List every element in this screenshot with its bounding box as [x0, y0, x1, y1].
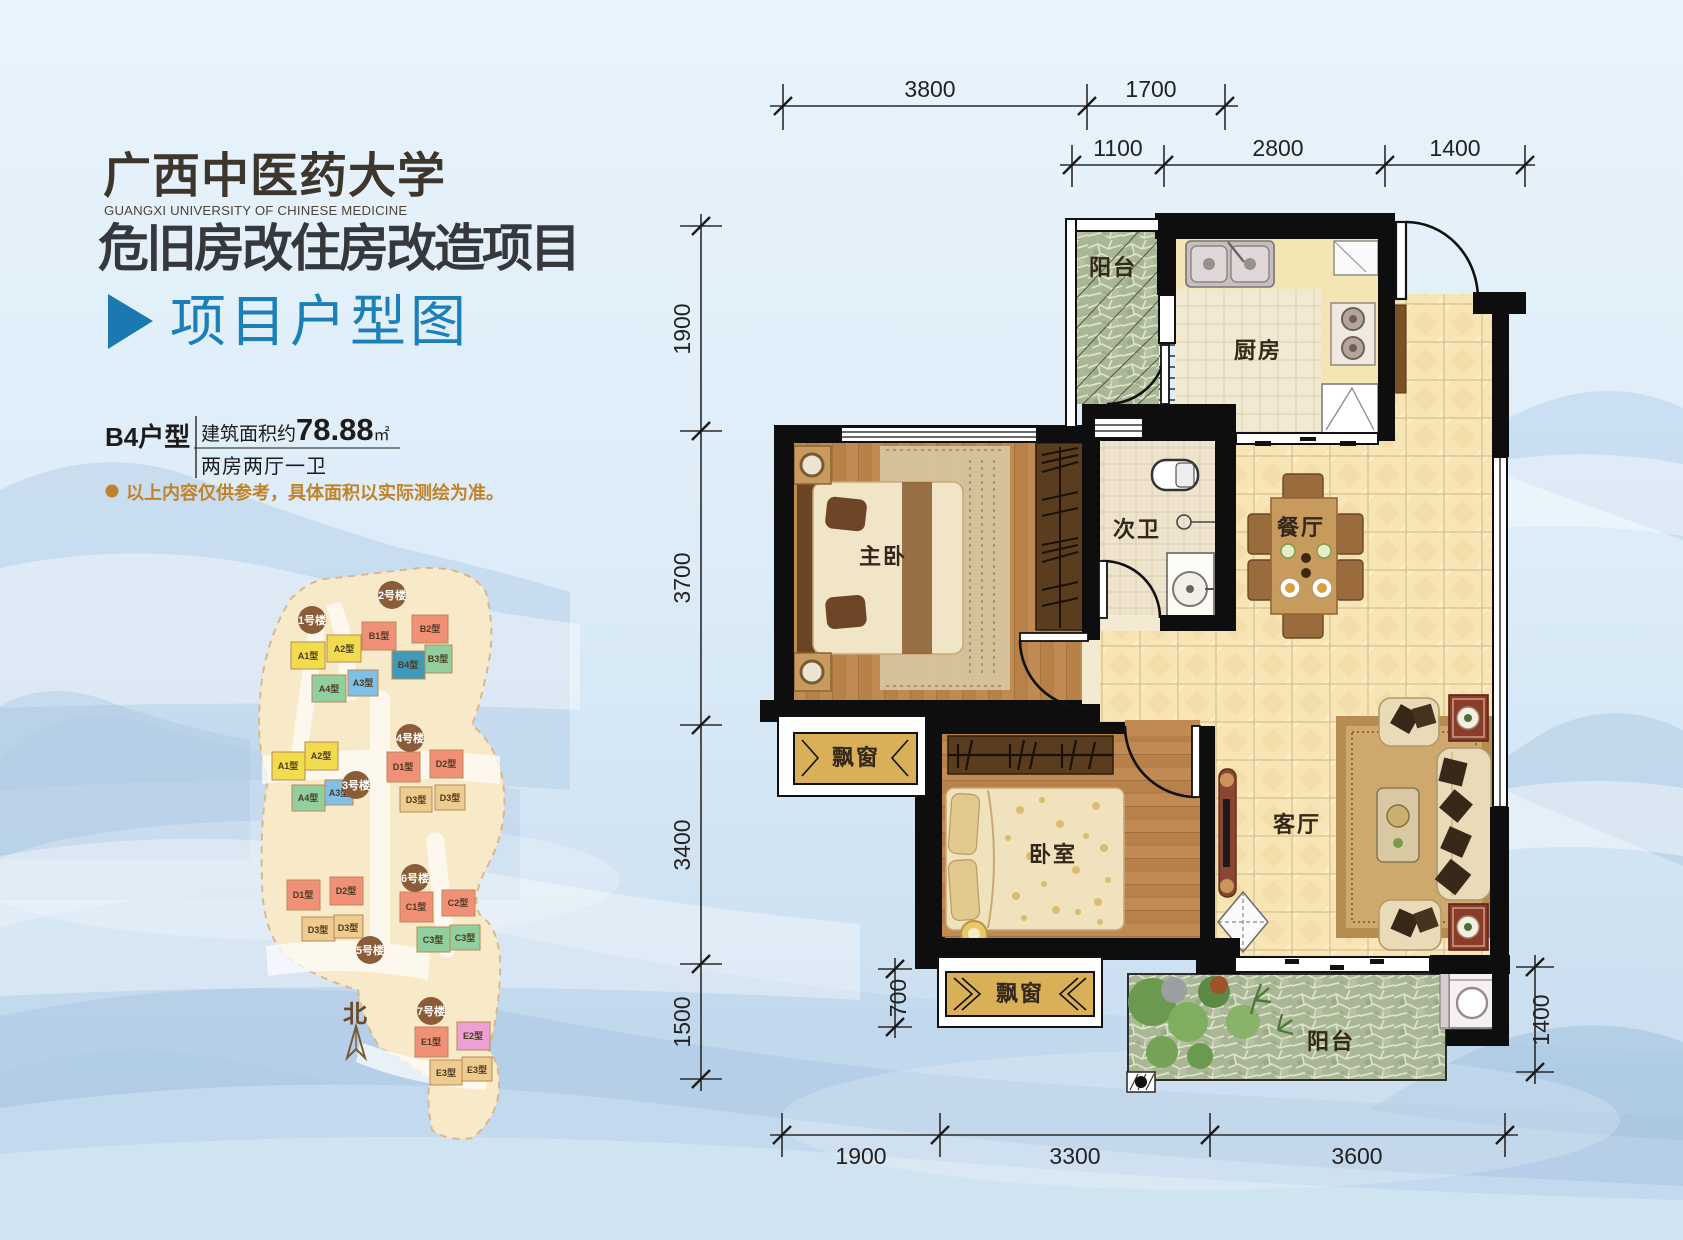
svg-text:以上内容仅供参考，具体面积以实际测绘为准。: 以上内容仅供参考，具体面积以实际测绘为准。: [126, 482, 504, 503]
svg-text:E1型: E1型: [421, 1036, 441, 1047]
svg-text:D3型: D3型: [308, 924, 329, 935]
svg-text:6号楼: 6号楼: [401, 871, 429, 885]
svg-text:B4户型: B4户型: [105, 422, 190, 452]
svg-text:1500: 1500: [669, 996, 695, 1047]
svg-text:厨房: 厨房: [1234, 338, 1282, 363]
svg-text:2800: 2800: [1252, 135, 1303, 161]
svg-text:2号楼: 2号楼: [378, 588, 406, 602]
svg-text:A3型: A3型: [353, 677, 374, 688]
svg-text:E3型: E3型: [436, 1067, 456, 1078]
svg-text:卧室: 卧室: [1029, 842, 1077, 867]
svg-text:D1型: D1型: [293, 889, 314, 900]
svg-text:B2型: B2型: [420, 623, 441, 634]
svg-text:1900: 1900: [835, 1143, 886, 1169]
svg-text:A1型: A1型: [298, 650, 319, 661]
svg-text:A2型: A2型: [334, 643, 355, 654]
svg-text:C1型: C1型: [406, 901, 427, 912]
svg-text:700: 700: [885, 979, 911, 1017]
svg-text:次卫: 次卫: [1113, 517, 1161, 542]
svg-text:4号楼: 4号楼: [396, 731, 424, 745]
svg-text:餐厅: 餐厅: [1277, 515, 1325, 540]
svg-text:D3型: D3型: [440, 792, 461, 803]
svg-text:1号楼: 1号楼: [298, 613, 326, 627]
svg-text:1900: 1900: [669, 303, 695, 354]
svg-text:飘窗: 飘窗: [832, 745, 880, 770]
svg-text:D3型: D3型: [406, 794, 427, 805]
svg-text:危旧房改住房改造项目: 危旧房改住房改造项目: [98, 220, 578, 277]
svg-text:D2型: D2型: [336, 885, 357, 896]
svg-text:A4型: A4型: [298, 792, 319, 803]
svg-text:1700: 1700: [1125, 76, 1176, 102]
svg-text:3号楼: 3号楼: [342, 778, 370, 792]
svg-text:3800: 3800: [904, 76, 955, 102]
svg-text:3600: 3600: [1331, 1143, 1382, 1169]
svg-text:B3型: B3型: [428, 653, 449, 664]
svg-text:D3型: D3型: [338, 922, 359, 933]
svg-text:C3型: C3型: [455, 932, 476, 943]
svg-text:飘窗: 飘窗: [996, 981, 1044, 1006]
svg-text:3300: 3300: [1049, 1143, 1100, 1169]
svg-text:5号楼: 5号楼: [356, 943, 384, 957]
svg-text:B1型: B1型: [369, 630, 390, 641]
svg-text:1100: 1100: [1093, 135, 1142, 161]
svg-text:A4型: A4型: [319, 683, 340, 694]
svg-text:3400: 3400: [669, 819, 695, 870]
svg-text:GUANGXI UNIVERSITY OF CHINESE: GUANGXI UNIVERSITY OF CHINESE MEDICINE: [104, 203, 407, 218]
svg-text:A2型: A2型: [311, 750, 332, 761]
svg-text:1400: 1400: [1429, 135, 1480, 161]
svg-text:E3型: E3型: [467, 1064, 487, 1075]
svg-text:E2型: E2型: [463, 1030, 483, 1041]
svg-text:3700: 3700: [669, 552, 695, 603]
svg-text:7号楼: 7号楼: [417, 1004, 445, 1018]
svg-text:主卧: 主卧: [859, 544, 907, 569]
svg-text:D2型: D2型: [436, 758, 457, 769]
svg-text:客厅: 客厅: [1273, 812, 1321, 837]
svg-text:项目户型图: 项目户型图: [170, 290, 470, 353]
svg-text:阳台: 阳台: [1307, 1029, 1355, 1054]
svg-text:1400: 1400: [1528, 994, 1554, 1045]
svg-text:阳台: 阳台: [1089, 255, 1137, 280]
svg-text:B4型: B4型: [398, 659, 419, 670]
svg-text:北: 北: [343, 1001, 367, 1028]
svg-text:两房两厅一卫: 两房两厅一卫: [201, 455, 327, 478]
svg-text:广西中医药大学: 广西中医药大学: [103, 150, 446, 203]
svg-text:C2型: C2型: [448, 897, 469, 908]
svg-text:D1型: D1型: [393, 761, 414, 772]
svg-text:C3型: C3型: [423, 934, 444, 945]
svg-text:A1型: A1型: [278, 760, 299, 771]
